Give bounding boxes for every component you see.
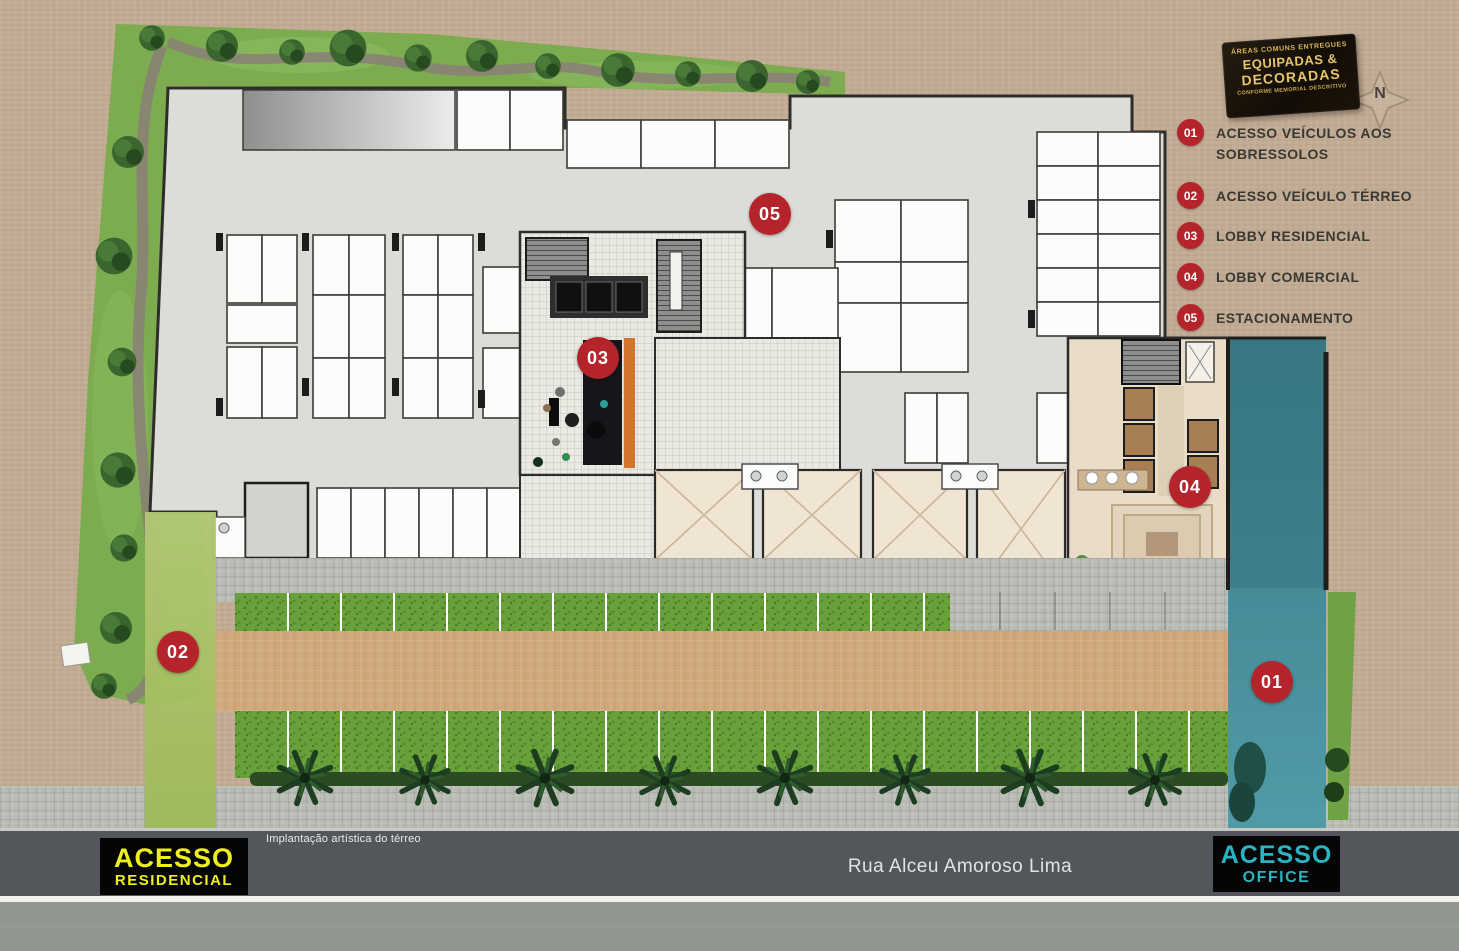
legend-label-05: ESTACIONAMENTO [1216,308,1412,329]
marker-lobby-residencial: 03 [577,337,619,379]
legend-label-04: LOBBY COMERCIAL [1216,267,1412,288]
access-residencial-sign: ACESSO RESIDENCIAL [100,838,248,895]
hedge [250,772,1228,786]
legend-dot-01: 01 [1177,119,1204,146]
marker-acesso-terreo: 02 [157,631,199,673]
drive-aisle [200,631,1228,711]
legend-dot-04: 04 [1177,263,1204,290]
stairs [526,238,588,280]
legend-label-02: ACESSO VEÍCULO TÉRREO [1216,186,1412,207]
access-office-line1: ACESSO [1213,842,1340,869]
legend-item-03: 03 LOBBY RESIDENCIAL [1177,222,1412,249]
utility-room [245,483,308,558]
marker-estacionamento: 05 [749,193,791,235]
office-drive [1228,338,1356,840]
compass-north-label: N [1374,85,1386,102]
legend-item-02: 02 ACESSO VEÍCULO TÉRREO [1177,182,1412,209]
legend-label-03: LOBBY RESIDENCIAL [1216,226,1412,247]
access-office-line2: OFFICE [1213,869,1340,887]
front-yard [200,558,1228,778]
legend-dot-02: 02 [1177,182,1204,209]
stairs [1122,340,1180,384]
legend-dot-03: 03 [1177,222,1204,249]
lobby-accent-stripe [624,338,635,468]
access-residencial-line1: ACESSO [100,844,248,872]
delivery-badge: ÁREAS COMUNS ENTREGUES EQUIPADAS & DECOR… [1222,33,1361,118]
legend-item-05: 05 ESTACIONAMENTO [1177,304,1412,331]
commercial-core [1068,338,1228,590]
legend-dot-05: 05 [1177,304,1204,331]
legend-item-01: 01 ACESSO VEÍCULOS AOS SOBRESSOLOS [1177,119,1412,165]
access-office-sign: ACESSO OFFICE [1213,836,1340,892]
artistic-caption: Implantação artística do térreo [266,833,421,845]
access-residencial-line2: RESIDENCIAL [100,872,248,889]
legend-item-04: 04 LOBBY COMERCIAL [1177,263,1412,290]
marker-acesso-sobressolos: 01 [1251,661,1293,703]
site-plan-image: N 05 03 04 02 01 ÁREAS COMUNS ENTREGUES … [0,0,1459,951]
grass-paver-stalls-bottom [235,711,1228,778]
path-kiosk [61,642,91,667]
garage-ramp [243,90,455,150]
marker-lobby-comercial: 04 [1169,466,1211,508]
legend-label-01: ACESSO VEÍCULOS AOS SOBRESSOLOS [1216,123,1412,165]
street-name: Rua Alceu Amoroso Lima [848,856,1072,878]
residential-drive [145,512,216,840]
grass-paver-stalls-top [235,593,950,631]
wc-small [213,517,245,558]
